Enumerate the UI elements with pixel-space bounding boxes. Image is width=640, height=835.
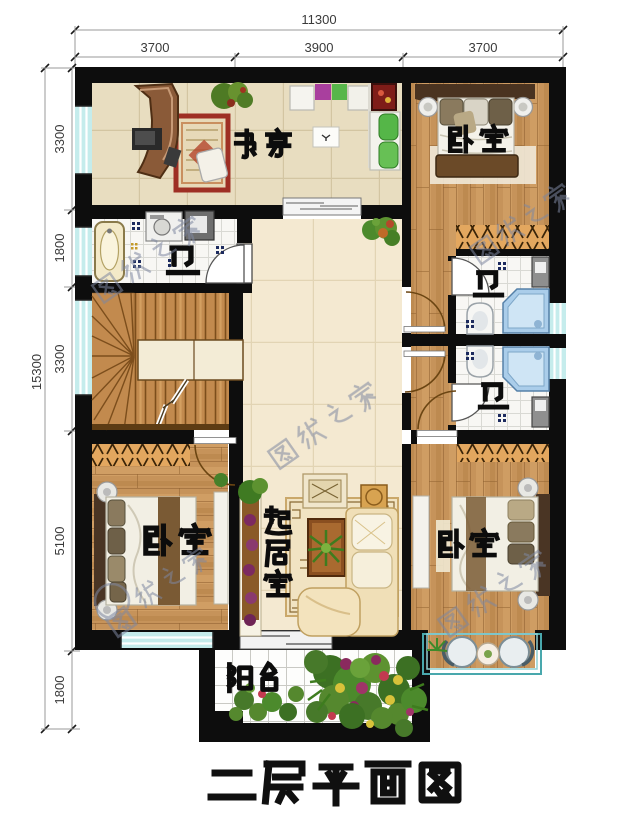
svg-text:3300: 3300 (52, 345, 67, 374)
svg-text:11300: 11300 (301, 12, 336, 27)
svg-text:3700: 3700 (469, 40, 498, 55)
svg-text:3300: 3300 (52, 125, 67, 154)
svg-text:1800: 1800 (52, 234, 67, 263)
svg-text:3900: 3900 (305, 40, 334, 55)
svg-text:15300: 15300 (29, 354, 44, 390)
svg-text:3700: 3700 (141, 40, 170, 55)
svg-text:5100: 5100 (52, 527, 67, 556)
svg-text:1800: 1800 (52, 676, 67, 705)
